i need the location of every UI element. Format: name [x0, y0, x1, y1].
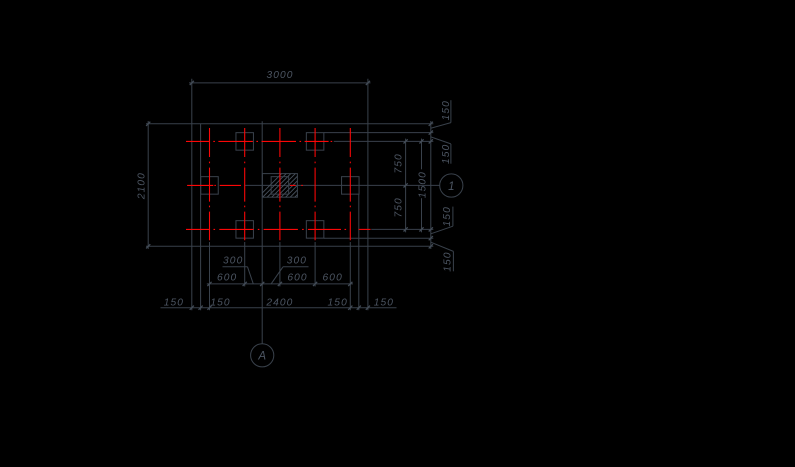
- svg-text:300: 300: [287, 255, 307, 266]
- svg-text:750: 750: [393, 153, 404, 173]
- svg-text:1500: 1500: [417, 171, 428, 198]
- svg-text:2400: 2400: [265, 297, 293, 308]
- svg-text:600: 600: [287, 272, 307, 283]
- svg-text:150: 150: [328, 297, 348, 308]
- svg-text:150: 150: [441, 100, 452, 120]
- svg-text:600: 600: [323, 272, 343, 283]
- svg-text:150: 150: [441, 144, 452, 164]
- svg-text:150: 150: [164, 297, 184, 308]
- svg-text:600: 600: [217, 272, 237, 283]
- svg-text:150: 150: [210, 297, 230, 308]
- svg-text:3000: 3000: [266, 70, 293, 81]
- svg-text:150: 150: [442, 251, 453, 271]
- svg-text:A: A: [257, 351, 266, 363]
- svg-text:1: 1: [448, 181, 454, 193]
- svg-text:150: 150: [442, 206, 453, 226]
- svg-text:750: 750: [393, 197, 404, 217]
- svg-text:2100: 2100: [137, 172, 148, 200]
- svg-text:150: 150: [374, 297, 394, 308]
- svg-text:300: 300: [223, 255, 243, 266]
